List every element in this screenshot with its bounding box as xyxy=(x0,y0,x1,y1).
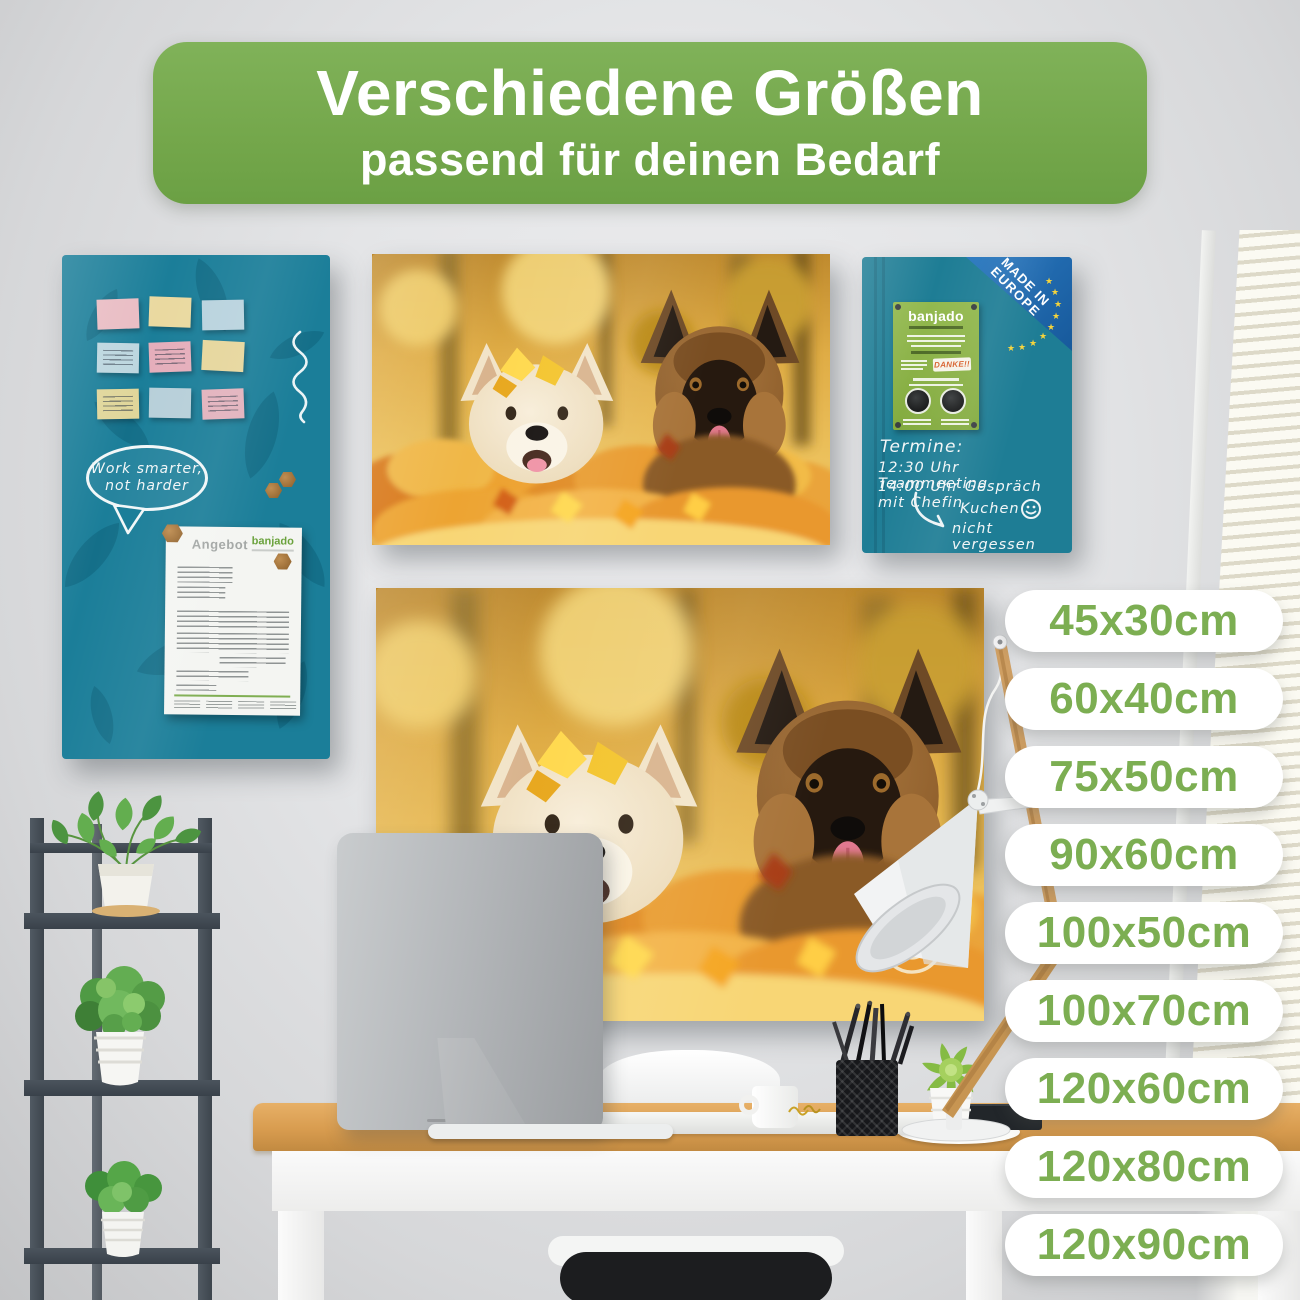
size-label: 60x40cm xyxy=(1049,674,1238,724)
size-label: 90x60cm xyxy=(1049,830,1238,880)
potted-plant-small xyxy=(62,1152,182,1264)
header-subtitle: passend für deinen Bedarf xyxy=(360,134,940,186)
squiggle-drawing xyxy=(284,330,314,425)
potted-plant-pothos xyxy=(38,790,213,918)
size-option[interactable]: 75x50cm xyxy=(1005,746,1283,808)
flyer-text-line xyxy=(901,360,927,362)
product-scene: Work smarter, not harder Angebot banjado xyxy=(0,0,1300,1300)
note-scribble xyxy=(103,395,133,413)
sticky-note xyxy=(202,300,245,331)
header-banner: Verschiedene Größen passend für deinen B… xyxy=(153,42,1147,204)
document-footer-column xyxy=(206,701,232,710)
size-label: 75x50cm xyxy=(1049,752,1238,802)
note-scribble xyxy=(103,349,133,367)
kuchen-note-line2: nicht vergessen xyxy=(952,521,1072,553)
flyer-text-line xyxy=(909,384,963,386)
potted-plant-bush xyxy=(58,958,183,1090)
hand-drawn-arrow-icon xyxy=(910,489,958,531)
banjado-flyer: banjado DANKE!! xyxy=(893,302,979,430)
flyer-brand-logo: banjado xyxy=(893,308,979,324)
photo-board-medium xyxy=(372,254,830,545)
eu-star-icon: ★ xyxy=(1052,312,1060,321)
document-text-lines xyxy=(177,566,232,583)
dogs-autumn-photo xyxy=(372,254,830,545)
document-text-lines xyxy=(177,632,289,653)
eu-star-icon: ★ xyxy=(1047,323,1055,332)
size-option[interactable]: 100x70cm xyxy=(1005,980,1283,1042)
eu-star-icon: ★ xyxy=(1051,288,1059,297)
flyer-dog-photo xyxy=(905,388,931,414)
eu-star-icon: ★ xyxy=(1054,300,1062,309)
size-label: 120x60cm xyxy=(1037,1064,1251,1114)
sticky-note xyxy=(97,343,140,374)
smiley-icon xyxy=(1020,498,1042,520)
document-footer-column xyxy=(270,701,296,710)
flyer-text-line xyxy=(911,351,961,354)
schedule-board: MADE IN EUROPE ★ ★ ★ ★ ★ ★ ★ ★ ★ banjado xyxy=(862,257,1072,553)
chair-cushion xyxy=(560,1252,832,1300)
flyer-text-line xyxy=(907,335,965,337)
offer-document: Angebot banjado xyxy=(164,526,302,715)
note-scribble xyxy=(208,395,238,413)
eu-star-icon: ★ xyxy=(1039,332,1047,341)
size-option[interactable]: 120x80cm xyxy=(1005,1136,1283,1198)
eu-star-icon: ★ xyxy=(1045,277,1053,286)
size-option[interactable]: 90x60cm xyxy=(1005,824,1283,886)
size-option[interactable]: 120x90cm xyxy=(1005,1214,1283,1276)
eu-star-icon: ★ xyxy=(1029,339,1037,348)
size-label: 120x90cm xyxy=(1037,1220,1251,1270)
document-text-lines xyxy=(177,586,225,601)
document-footer-column xyxy=(238,701,264,710)
speech-bubble-tail xyxy=(108,503,152,537)
flyer-text-line xyxy=(901,368,923,370)
board-fold-line xyxy=(874,257,877,553)
flyer-text-line xyxy=(901,364,927,366)
memo-board: Work smarter, not harder Angebot banjado xyxy=(62,255,330,759)
speech-bubble-line1: Work smarter, xyxy=(91,461,203,479)
eu-star-icon: ★ xyxy=(1007,344,1015,353)
flyer-text-line xyxy=(903,423,931,425)
size-option[interactable]: 100x50cm xyxy=(1005,902,1283,964)
danke-stamp: DANKE!! xyxy=(933,357,971,371)
sticky-note xyxy=(148,341,191,372)
flyer-text-line xyxy=(941,423,969,425)
desk-leg xyxy=(966,1211,1002,1300)
magnet-dot-icon xyxy=(971,422,977,428)
document-footer-rule xyxy=(174,694,290,697)
danke-stamp-text: DANKE!! xyxy=(934,359,970,369)
monitor-foot xyxy=(428,1124,673,1139)
sticky-note xyxy=(96,298,139,329)
desk-leg xyxy=(278,1211,324,1300)
size-label: 100x70cm xyxy=(1037,986,1251,1036)
document-text-lines xyxy=(220,657,286,668)
sticky-note xyxy=(148,296,191,327)
document-brand-logo: banjado xyxy=(252,535,294,547)
flyer-dog-photo xyxy=(940,388,966,414)
sticky-note xyxy=(201,340,245,372)
magnet-dot-icon xyxy=(895,422,901,428)
cork-magnet-icon xyxy=(274,553,292,569)
size-option[interactable]: 120x60cm xyxy=(1005,1058,1283,1120)
document-brand-tagline xyxy=(252,549,294,551)
paper-clips[interactable] xyxy=(786,1100,822,1116)
document-title: Angebot xyxy=(192,537,248,553)
termine-heading: Termine: xyxy=(880,437,964,457)
document-text-lines xyxy=(176,670,248,681)
size-option[interactable]: 45x30cm xyxy=(1005,590,1283,652)
speech-bubble: Work smarter, not harder xyxy=(86,445,208,511)
flyer-text-line xyxy=(911,345,961,347)
size-label: 45x30cm xyxy=(1049,596,1238,646)
sticky-note xyxy=(201,388,244,419)
sticky-note xyxy=(97,389,140,420)
size-option[interactable]: 60x40cm xyxy=(1005,668,1283,730)
flyer-heading-line xyxy=(913,378,959,381)
document-text-lines xyxy=(177,610,289,629)
kuchen-note-line1: Kuchen xyxy=(960,501,1020,517)
flyer-tagline xyxy=(909,326,963,329)
header-title: Verschiedene Größen xyxy=(316,60,984,127)
size-label: 100x50cm xyxy=(1037,908,1251,958)
document-footer-column xyxy=(174,700,200,709)
flyer-text-line xyxy=(941,419,969,421)
flyer-text-line xyxy=(903,419,931,421)
flyer-text-line xyxy=(907,340,965,342)
cork-magnet-icon xyxy=(162,524,183,542)
size-label: 120x80cm xyxy=(1037,1142,1251,1192)
mug-handle xyxy=(739,1095,759,1115)
speech-bubble-line2: not harder xyxy=(105,478,189,496)
note-scribble xyxy=(155,348,185,366)
document-text-lines xyxy=(176,684,216,690)
eu-star-icon: ★ xyxy=(1018,343,1026,352)
sticky-note xyxy=(149,388,192,419)
